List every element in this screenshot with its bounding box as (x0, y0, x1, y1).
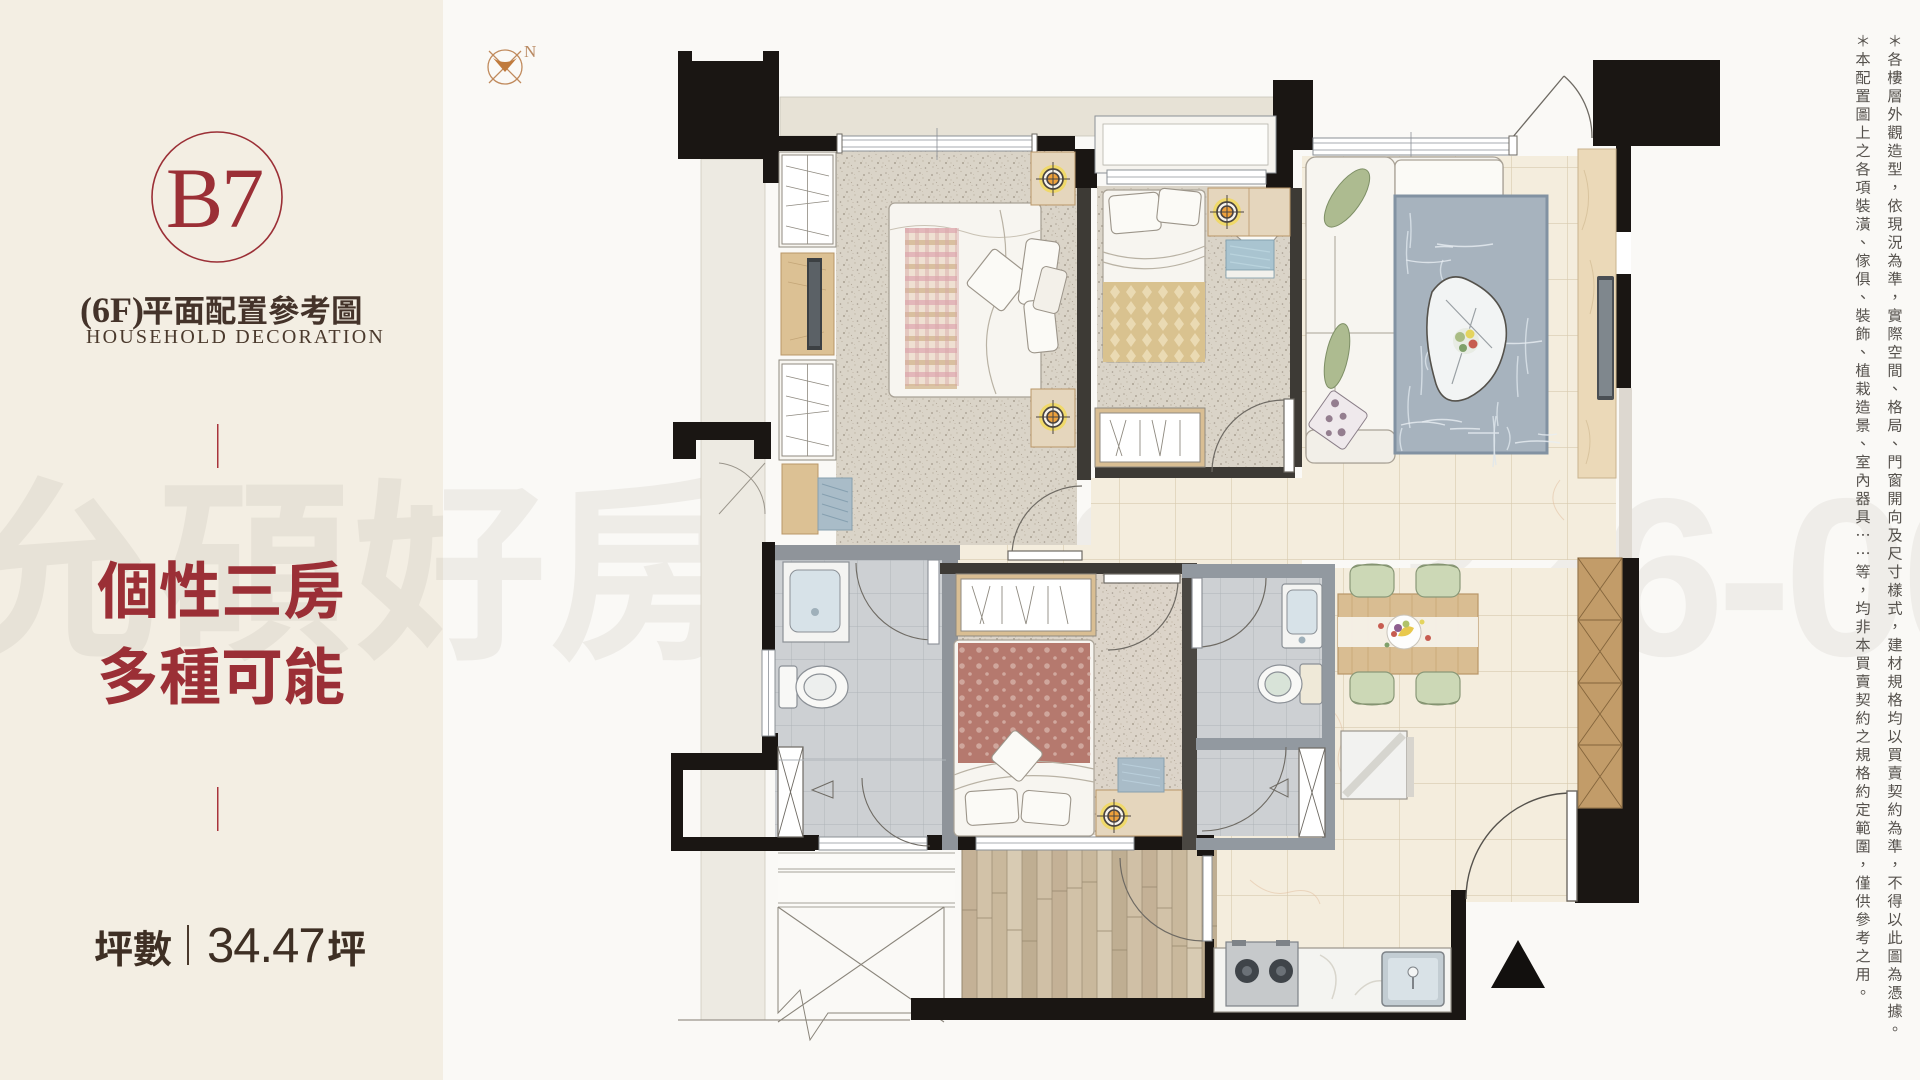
svg-text:(6F): (6F) (80, 290, 144, 330)
svg-text:34.47: 34.47 (207, 919, 325, 973)
svg-text:N: N (524, 42, 536, 61)
svg-text:B7: B7 (166, 150, 262, 246)
svg-text:HOUSEHOLD DECORATION: HOUSEHOLD DECORATION (86, 326, 385, 348)
